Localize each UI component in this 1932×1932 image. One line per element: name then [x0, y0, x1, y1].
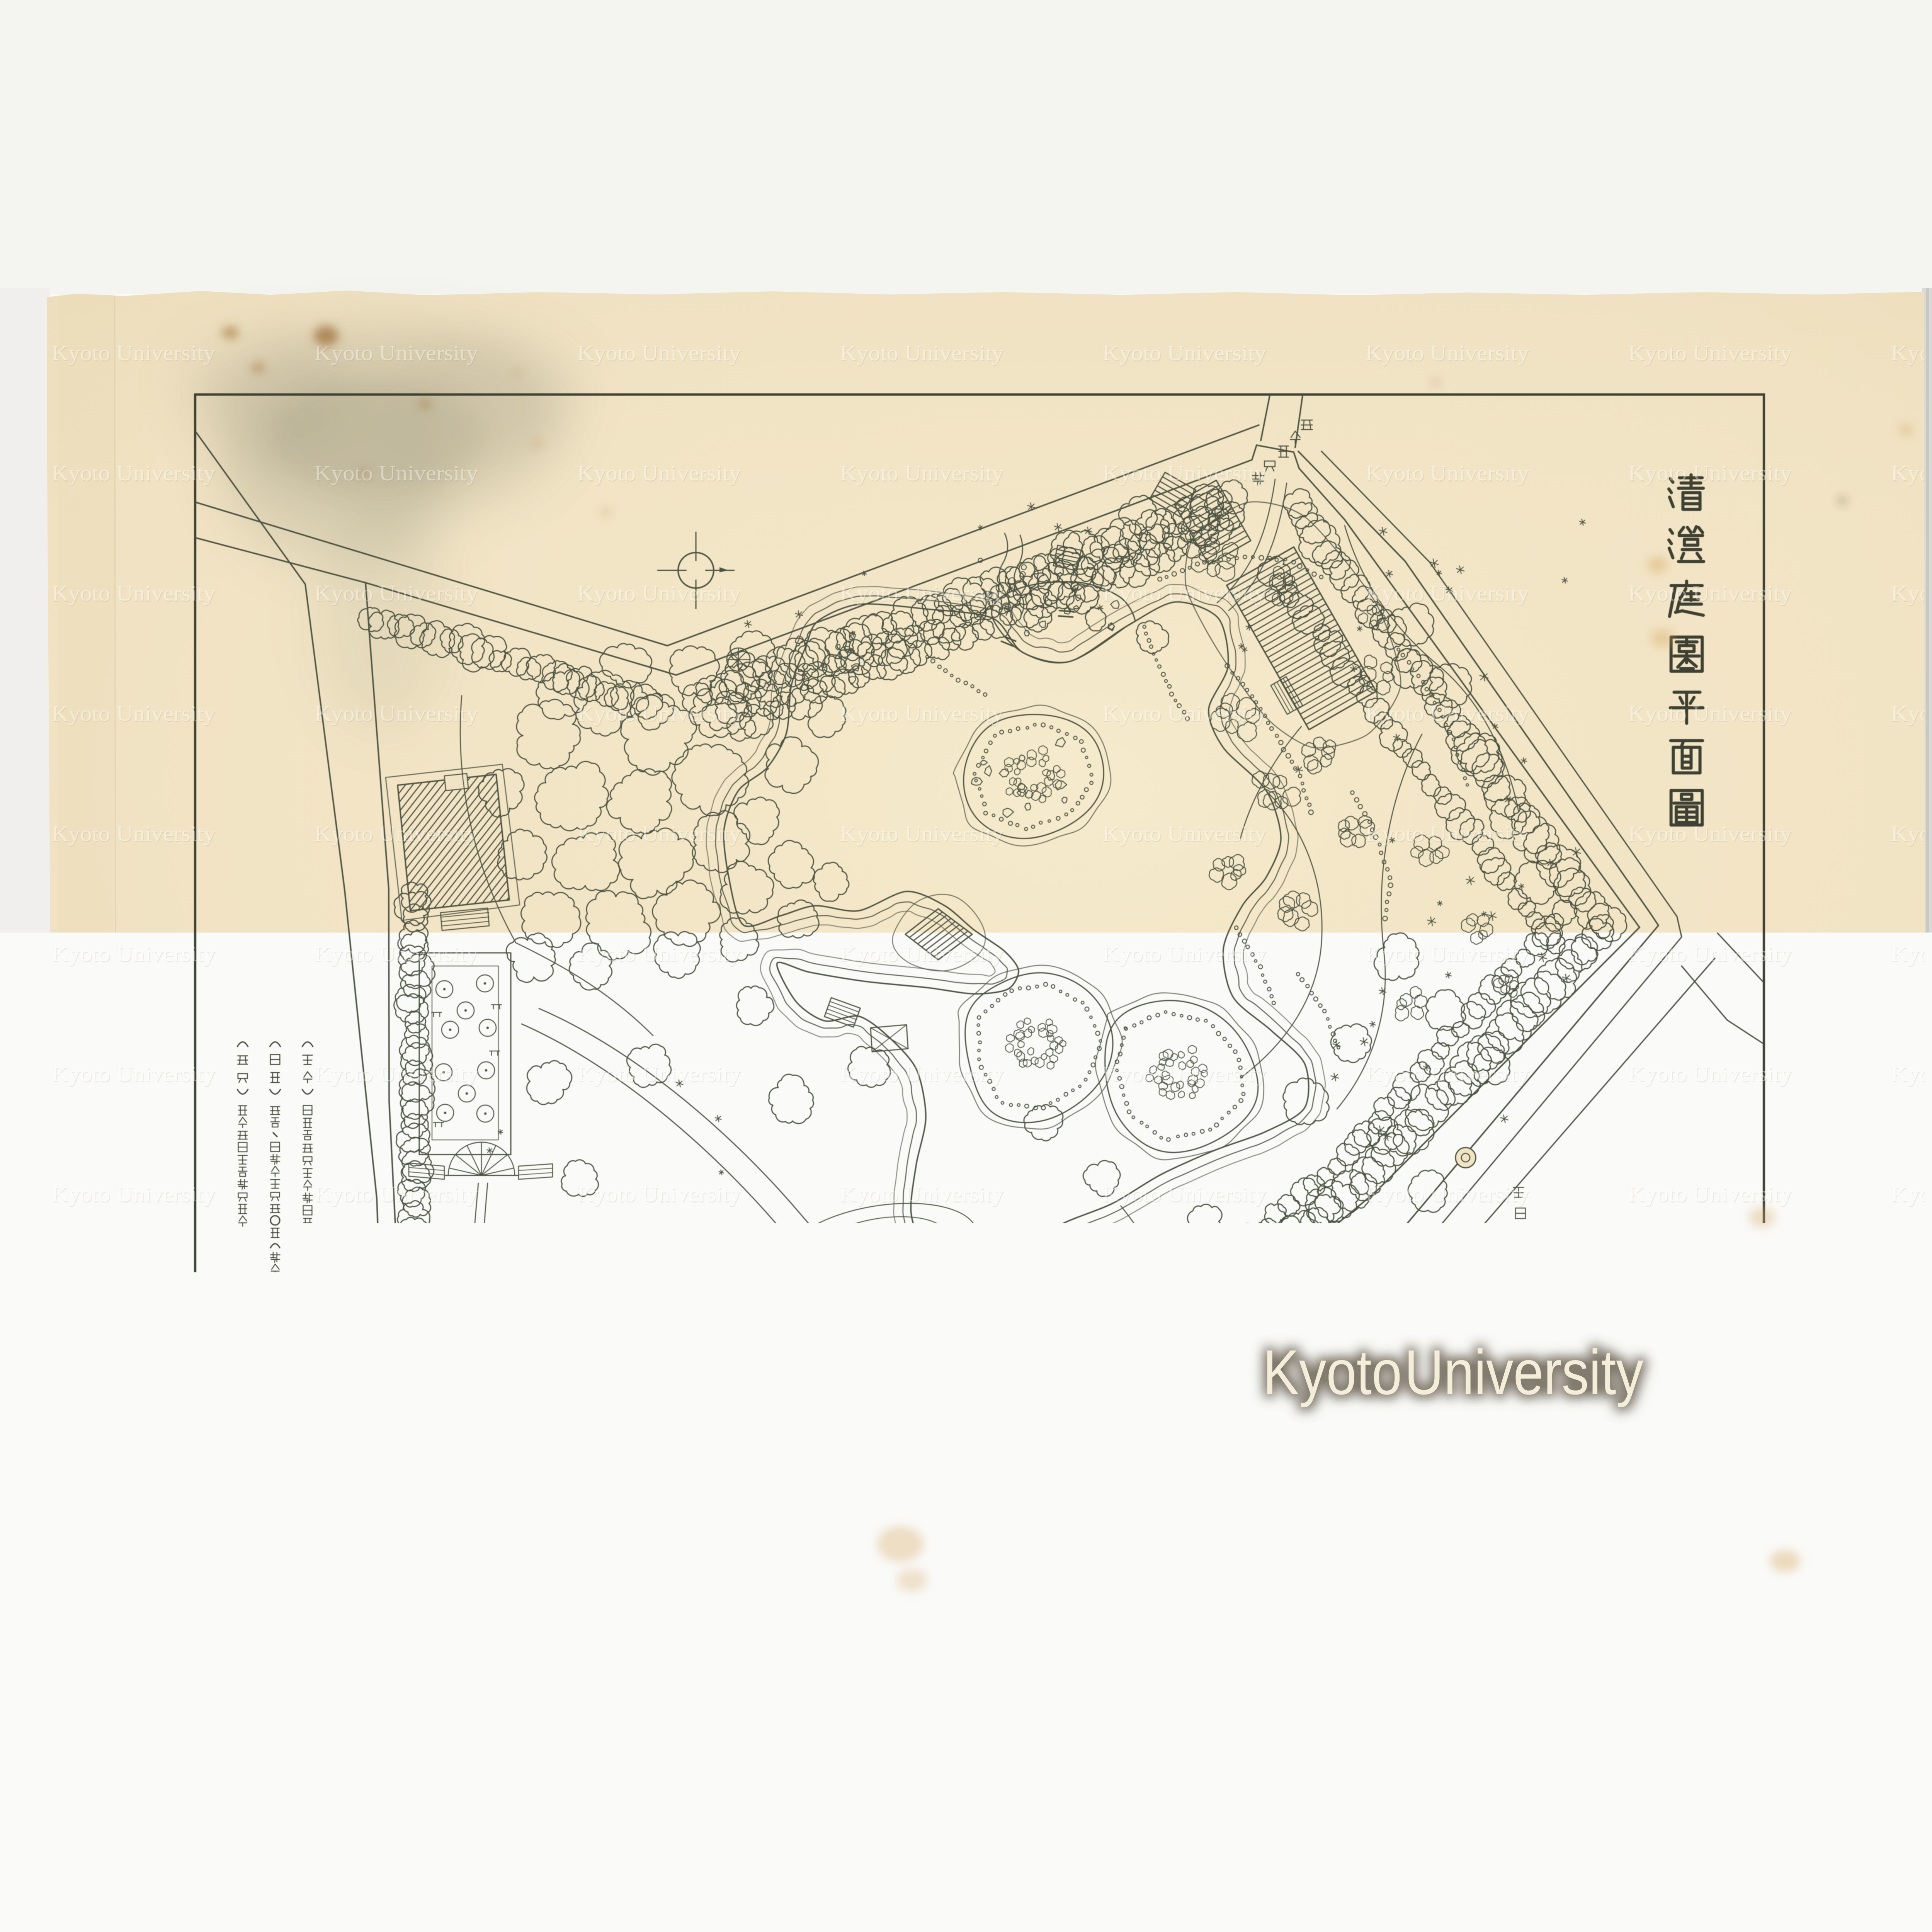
svg-text:Kyoto University: Kyoto University [1263, 1337, 1643, 1408]
